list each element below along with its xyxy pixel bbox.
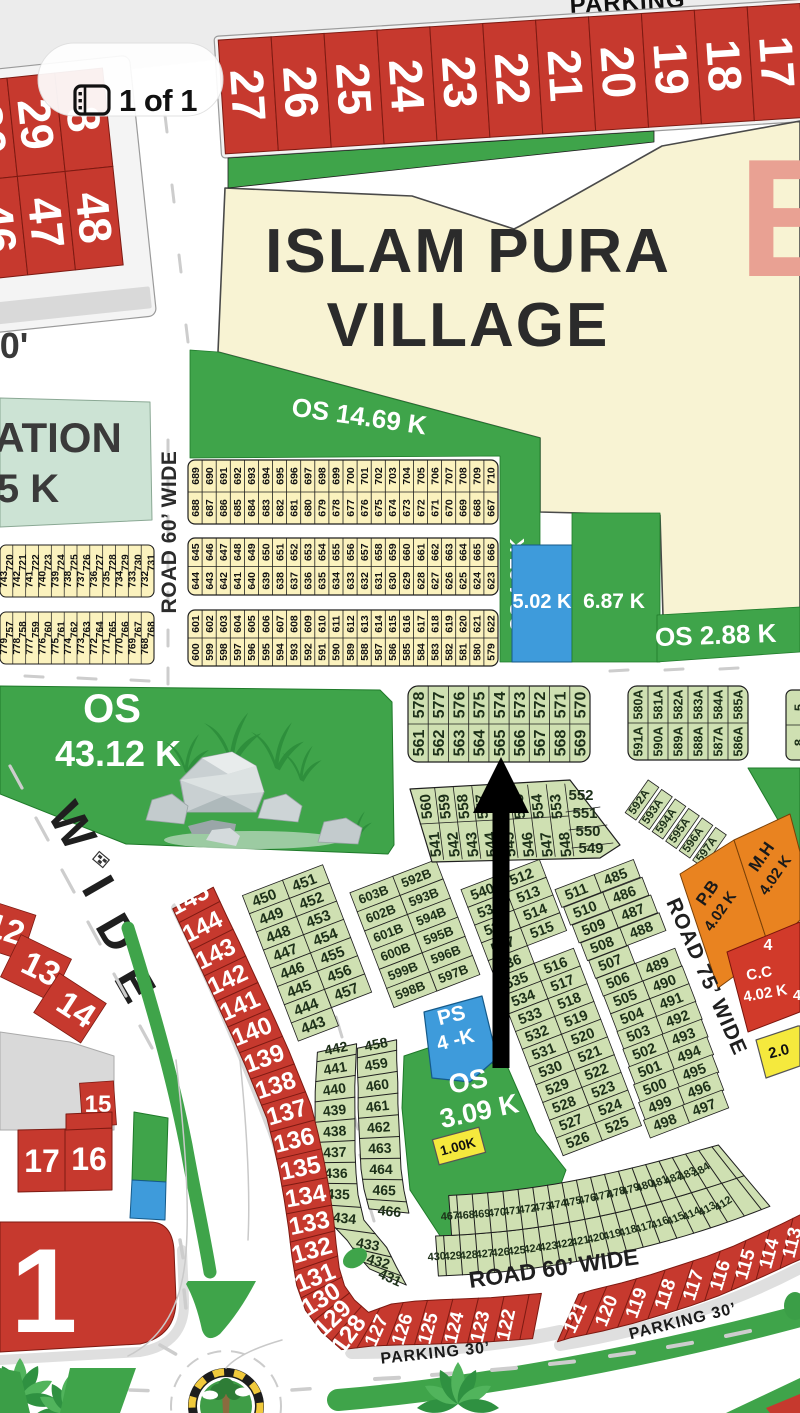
svg-text:653: 653 — [303, 543, 315, 561]
svg-text:646: 646 — [204, 543, 216, 561]
svg-text:21: 21 — [538, 48, 594, 104]
svg-text:699: 699 — [331, 467, 343, 485]
svg-text:672: 672 — [415, 499, 427, 517]
svg-text:543: 543 — [463, 831, 483, 858]
svg-text:619: 619 — [444, 615, 456, 633]
svg-text:677: 677 — [345, 499, 357, 517]
svg-text:618: 618 — [429, 615, 441, 633]
svg-text:728: 728 — [108, 554, 119, 571]
svg-text:685: 685 — [232, 499, 244, 517]
svg-text:710: 710 — [486, 467, 498, 485]
svg-text:701: 701 — [359, 467, 371, 485]
svg-text:626: 626 — [444, 572, 456, 590]
svg-text:637: 637 — [289, 572, 301, 590]
svg-text:625: 625 — [458, 572, 470, 590]
svg-text:584A: 584A — [712, 690, 726, 720]
svg-text:705: 705 — [415, 467, 427, 485]
svg-text:554: 554 — [528, 792, 548, 819]
svg-text:590A: 590A — [652, 727, 666, 757]
svg-text:737: 737 — [76, 571, 87, 588]
svg-text:582: 582 — [444, 643, 456, 661]
svg-text:643: 643 — [204, 572, 216, 590]
svg-text:ISLAM PURA: ISLAM PURA — [265, 217, 671, 286]
svg-text:773: 773 — [76, 638, 87, 655]
svg-text:VILLAGE: VILLAGE — [327, 291, 610, 360]
svg-text:771: 771 — [102, 638, 113, 655]
svg-text:680: 680 — [303, 499, 315, 517]
svg-text:692: 692 — [232, 467, 244, 485]
svg-text:562: 562 — [431, 730, 448, 757]
svg-text:550: 550 — [575, 823, 600, 840]
svg-text:628: 628 — [415, 572, 427, 590]
svg-text:ROAD 60’ WIDE: ROAD 60’ WIDE — [158, 451, 181, 614]
svg-text:698: 698 — [317, 467, 329, 485]
svg-text:664: 664 — [458, 543, 470, 561]
svg-text:735: 735 — [102, 571, 113, 588]
svg-text:462: 462 — [366, 1118, 391, 1136]
svg-text:652: 652 — [289, 543, 301, 561]
svg-text:575: 575 — [472, 692, 489, 719]
svg-text:768: 768 — [140, 638, 151, 655]
svg-text:668: 668 — [472, 499, 484, 517]
svg-text:6.87 K: 6.87 K — [583, 590, 645, 613]
svg-text:720: 720 — [5, 554, 16, 571]
svg-text:597: 597 — [232, 643, 244, 661]
svg-text:759: 759 — [31, 621, 42, 638]
svg-text:639: 639 — [260, 572, 272, 590]
svg-text:588: 588 — [359, 643, 371, 661]
svg-text:603: 603 — [218, 615, 230, 633]
svg-text:740: 740 — [37, 571, 48, 588]
svg-text:585A: 585A — [732, 690, 746, 720]
svg-text:656: 656 — [345, 543, 357, 561]
svg-text:768: 768 — [146, 621, 157, 638]
svg-text:633: 633 — [345, 572, 357, 590]
svg-text:691: 691 — [218, 467, 230, 485]
svg-text:661: 661 — [415, 543, 427, 561]
svg-text:779: 779 — [0, 638, 10, 655]
svg-text:623: 623 — [486, 572, 498, 590]
svg-text:569: 569 — [573, 730, 590, 757]
svg-text:738: 738 — [63, 571, 74, 588]
svg-text:590: 590 — [331, 643, 343, 661]
svg-text:659: 659 — [387, 543, 399, 561]
svg-text:18: 18 — [696, 38, 752, 94]
svg-text:586: 586 — [387, 643, 399, 661]
svg-text:739: 739 — [50, 571, 61, 588]
svg-text:566: 566 — [512, 730, 529, 757]
svg-text:630: 630 — [387, 572, 399, 590]
svg-text:440: 440 — [322, 1079, 348, 1098]
svg-text:580A: 580A — [632, 690, 646, 720]
svg-text:725: 725 — [69, 554, 80, 571]
svg-text:579: 579 — [486, 643, 498, 661]
svg-text:761: 761 — [56, 621, 67, 638]
svg-text:620: 620 — [458, 615, 470, 633]
svg-text:662: 662 — [429, 543, 441, 561]
svg-text:766: 766 — [121, 621, 132, 638]
svg-text:596: 596 — [246, 643, 258, 661]
svg-text:591A: 591A — [632, 727, 646, 757]
svg-text:571: 571 — [552, 692, 569, 719]
svg-text:657: 657 — [359, 543, 371, 561]
svg-text:743: 743 — [0, 571, 10, 588]
svg-text:694: 694 — [260, 467, 272, 485]
svg-text:592: 592 — [303, 643, 315, 661]
svg-text:774: 774 — [63, 638, 74, 655]
svg-text:651: 651 — [274, 543, 286, 561]
svg-text:742: 742 — [12, 571, 23, 588]
svg-text:758: 758 — [18, 621, 29, 638]
svg-text:730: 730 — [133, 554, 144, 571]
svg-text:665: 665 — [472, 543, 484, 561]
svg-text:762: 762 — [69, 621, 80, 638]
svg-text:689: 689 — [190, 467, 202, 485]
svg-text:697: 697 — [303, 467, 315, 485]
svg-text:598: 598 — [218, 643, 230, 661]
svg-text:22: 22 — [485, 51, 541, 107]
svg-text:776: 776 — [37, 638, 48, 655]
svg-text:734: 734 — [114, 571, 125, 588]
svg-text:609: 609 — [303, 615, 315, 633]
svg-text:5: 5 — [792, 704, 800, 711]
svg-text:4: 4 — [764, 937, 773, 954]
svg-text:552: 552 — [568, 787, 593, 804]
svg-text:638: 638 — [274, 572, 286, 590]
svg-text:678: 678 — [331, 499, 343, 517]
svg-text:686: 686 — [218, 499, 230, 517]
svg-text:723: 723 — [44, 554, 55, 571]
svg-text:667: 667 — [486, 499, 498, 517]
svg-text:611: 611 — [331, 615, 343, 632]
svg-text:580: 580 — [472, 643, 484, 661]
svg-text:ATION: ATION — [0, 414, 122, 461]
svg-text:615: 615 — [387, 615, 399, 633]
svg-text:670: 670 — [444, 499, 456, 517]
svg-text:778: 778 — [12, 638, 23, 655]
svg-text:770: 770 — [114, 638, 125, 655]
svg-text:577: 577 — [431, 692, 448, 719]
svg-text:642: 642 — [218, 572, 230, 590]
svg-text:627: 627 — [429, 572, 441, 590]
svg-text:640: 640 — [246, 572, 258, 590]
svg-text:E: E — [738, 124, 800, 312]
svg-text:607: 607 — [274, 615, 286, 633]
svg-text:641: 641 — [232, 572, 244, 590]
svg-text:0': 0' — [0, 325, 28, 366]
svg-text:690: 690 — [204, 467, 216, 485]
svg-text:681: 681 — [289, 499, 301, 517]
svg-text:732: 732 — [140, 571, 151, 588]
svg-text:594: 594 — [274, 643, 286, 661]
svg-text:673: 673 — [401, 499, 413, 517]
svg-text:604: 604 — [232, 615, 244, 633]
svg-text:772: 772 — [89, 638, 100, 655]
svg-text:439: 439 — [322, 1101, 347, 1119]
svg-text:564: 564 — [472, 730, 489, 757]
svg-text:674: 674 — [387, 499, 399, 517]
svg-text:576: 576 — [451, 692, 468, 719]
svg-text:682: 682 — [274, 499, 286, 517]
svg-text:775: 775 — [50, 638, 61, 655]
svg-text:546: 546 — [519, 831, 539, 858]
svg-text:683: 683 — [260, 499, 272, 517]
svg-text:724: 724 — [56, 554, 67, 571]
svg-text:25: 25 — [326, 61, 382, 117]
svg-text:655: 655 — [331, 543, 343, 561]
svg-text:636: 636 — [303, 572, 315, 590]
svg-text:635: 635 — [317, 572, 329, 590]
svg-text:26: 26 — [273, 64, 329, 120]
svg-text:461: 461 — [365, 1097, 390, 1115]
svg-text:647: 647 — [218, 543, 230, 561]
svg-text:593: 593 — [289, 643, 301, 661]
svg-text:549: 549 — [578, 840, 603, 857]
svg-text:679: 679 — [317, 499, 329, 517]
svg-text:1: 1 — [11, 1224, 78, 1358]
svg-text:586A: 586A — [732, 727, 746, 757]
svg-text:589A: 589A — [672, 727, 686, 757]
svg-text:729: 729 — [121, 554, 132, 571]
svg-text:733: 733 — [127, 571, 138, 588]
svg-text:693: 693 — [246, 467, 258, 485]
svg-text:567: 567 — [532, 730, 549, 757]
svg-text:599: 599 — [204, 643, 216, 661]
svg-text:765: 765 — [108, 621, 119, 638]
svg-text:8: 8 — [792, 739, 800, 746]
svg-text:684: 684 — [246, 499, 258, 517]
svg-text:631: 631 — [373, 572, 385, 590]
svg-text:644: 644 — [190, 572, 202, 590]
svg-text:700: 700 — [345, 467, 357, 485]
svg-text:464: 464 — [369, 1161, 393, 1177]
svg-text:629: 629 — [401, 572, 413, 590]
svg-text:731: 731 — [146, 554, 157, 571]
svg-text:634: 634 — [331, 572, 343, 590]
svg-text:706: 706 — [429, 467, 441, 485]
svg-text:436: 436 — [324, 1165, 348, 1181]
svg-text:582A: 582A — [672, 690, 686, 720]
svg-text:583A: 583A — [692, 690, 706, 720]
svg-text:460: 460 — [365, 1075, 391, 1094]
svg-text:676: 676 — [359, 499, 371, 517]
svg-text:17: 17 — [24, 1143, 60, 1179]
svg-text:17: 17 — [749, 34, 800, 90]
svg-text:760: 760 — [44, 621, 55, 638]
svg-text:617: 617 — [415, 615, 427, 633]
svg-text:5.02 K: 5.02 K — [513, 591, 572, 613]
svg-text:23: 23 — [432, 54, 488, 110]
svg-text:736: 736 — [89, 571, 100, 588]
svg-text:777: 777 — [25, 638, 36, 655]
svg-text:5 K: 5 K — [0, 467, 59, 511]
svg-text:726: 726 — [82, 554, 93, 571]
svg-text:558: 558 — [454, 793, 474, 820]
svg-text:602: 602 — [204, 615, 216, 633]
svg-text:622: 622 — [486, 615, 498, 633]
svg-text:541: 541 — [426, 831, 446, 858]
svg-text:621: 621 — [472, 615, 484, 633]
svg-text:645: 645 — [190, 543, 202, 561]
svg-text:722: 722 — [31, 554, 42, 571]
svg-text:581: 581 — [458, 643, 470, 661]
svg-text:763: 763 — [82, 621, 93, 638]
svg-text:573: 573 — [512, 692, 529, 719]
svg-text:24: 24 — [379, 58, 435, 114]
svg-text:553: 553 — [547, 793, 567, 820]
svg-text:721: 721 — [18, 554, 29, 571]
svg-text:570: 570 — [573, 692, 590, 719]
svg-text:649: 649 — [246, 543, 258, 561]
svg-text:764: 764 — [95, 621, 106, 638]
svg-text:581A: 581A — [652, 690, 666, 720]
svg-text:583: 583 — [429, 643, 441, 661]
svg-text:587: 587 — [373, 643, 385, 661]
svg-text:707: 707 — [444, 467, 456, 485]
svg-text:438: 438 — [322, 1122, 347, 1140]
svg-text:1 of 1: 1 of 1 — [119, 83, 197, 118]
svg-text:19: 19 — [643, 41, 699, 97]
svg-text:OS: OS — [83, 687, 141, 731]
svg-text:4: 4 — [793, 987, 800, 1004]
svg-text:559: 559 — [435, 793, 455, 820]
svg-text:OS 2.88 K: OS 2.88 K — [654, 618, 777, 652]
svg-text:20: 20 — [590, 44, 646, 100]
svg-text:688: 688 — [190, 499, 202, 517]
svg-text:563: 563 — [451, 730, 468, 757]
svg-text:675: 675 — [373, 499, 385, 517]
svg-text:588A: 588A — [692, 727, 706, 757]
svg-text:757: 757 — [5, 621, 16, 638]
svg-text:578: 578 — [411, 692, 428, 719]
svg-text:600: 600 — [190, 643, 202, 661]
svg-text:616: 616 — [401, 615, 413, 633]
svg-text:769: 769 — [127, 638, 138, 655]
svg-text:584: 584 — [415, 643, 427, 661]
svg-text:650: 650 — [260, 543, 272, 561]
svg-text:48: 48 — [66, 190, 123, 246]
svg-text:767: 767 — [133, 621, 144, 638]
svg-text:624: 624 — [472, 572, 484, 590]
svg-text:727: 727 — [95, 554, 106, 571]
svg-text:605: 605 — [246, 615, 258, 633]
svg-text:695: 695 — [274, 467, 286, 485]
svg-text:542: 542 — [444, 831, 464, 858]
svg-text:16: 16 — [71, 1141, 107, 1177]
svg-text:561: 561 — [411, 730, 428, 757]
svg-text:465: 465 — [372, 1182, 396, 1199]
svg-text:47: 47 — [18, 195, 75, 251]
svg-text:466: 466 — [377, 1202, 402, 1220]
svg-text:463: 463 — [368, 1140, 392, 1157]
svg-text:568: 568 — [552, 730, 569, 757]
svg-text:560: 560 — [417, 793, 437, 820]
svg-text:663: 663 — [444, 543, 456, 561]
svg-text:591: 591 — [317, 643, 329, 661]
svg-text:614: 614 — [373, 615, 385, 633]
svg-text:437: 437 — [323, 1144, 347, 1161]
svg-text:27: 27 — [220, 68, 276, 124]
svg-text:654: 654 — [317, 543, 329, 561]
svg-text:587A: 587A — [712, 727, 726, 757]
svg-text:585: 585 — [401, 643, 413, 661]
svg-text:595: 595 — [260, 643, 272, 661]
svg-text:704: 704 — [401, 467, 413, 485]
svg-text:606: 606 — [260, 615, 272, 633]
svg-text:687: 687 — [204, 499, 216, 517]
svg-text:709: 709 — [472, 467, 484, 485]
svg-text:612: 612 — [345, 615, 357, 633]
svg-text:702: 702 — [373, 467, 385, 485]
svg-text:601: 601 — [190, 615, 202, 633]
svg-text:671: 671 — [429, 499, 441, 517]
svg-text:434: 434 — [332, 1209, 357, 1227]
svg-text:565: 565 — [492, 730, 509, 757]
svg-text:741: 741 — [25, 571, 36, 588]
svg-text:589: 589 — [345, 643, 357, 661]
svg-text:574: 574 — [492, 692, 509, 719]
svg-text:572: 572 — [532, 692, 549, 719]
svg-text:547: 547 — [537, 831, 557, 858]
svg-text:43.12 K: 43.12 K — [55, 733, 181, 774]
svg-text:660: 660 — [401, 543, 413, 561]
svg-text:648: 648 — [232, 543, 244, 561]
svg-text:703: 703 — [387, 467, 399, 485]
svg-text:548: 548 — [556, 831, 576, 858]
svg-text:613: 613 — [359, 615, 371, 633]
svg-text:610: 610 — [317, 615, 329, 633]
svg-text:632: 632 — [359, 572, 371, 590]
svg-text:696: 696 — [289, 467, 301, 485]
svg-text:666: 666 — [486, 543, 498, 561]
svg-text:669: 669 — [458, 499, 470, 517]
svg-text:658: 658 — [373, 543, 385, 561]
svg-text:608: 608 — [289, 615, 301, 633]
svg-text:708: 708 — [458, 467, 470, 485]
